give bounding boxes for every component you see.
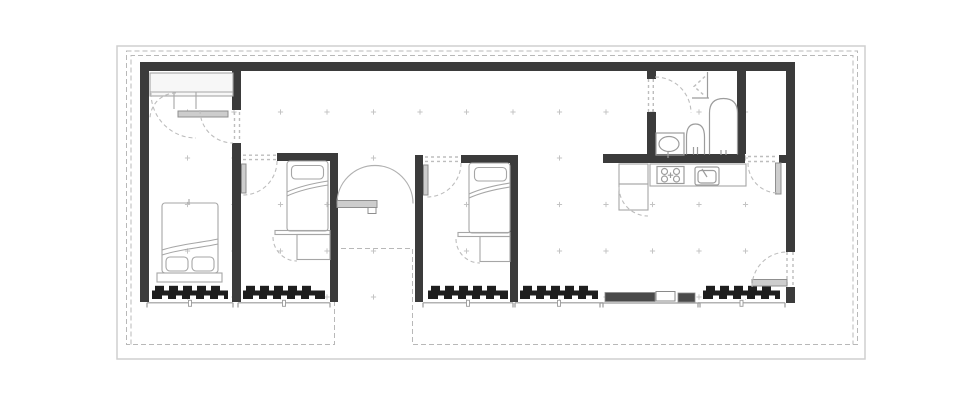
wall-bed3-north	[461, 155, 518, 163]
grid-cross	[324, 202, 329, 207]
bath-niche-lines	[692, 72, 709, 98]
window-shutter	[515, 286, 603, 308]
burner	[662, 176, 668, 182]
tub-outline	[710, 99, 738, 155]
basin-bowl	[659, 137, 679, 152]
wall-bed2-hall	[330, 153, 338, 302]
shutter-notch	[176, 296, 182, 300]
grid-cross	[696, 202, 701, 207]
entry-hall	[337, 166, 413, 214]
grid-cross	[371, 294, 376, 299]
shutter-notch	[295, 296, 301, 300]
wall-east-lower-stub	[786, 287, 795, 303]
shutter-tooth	[720, 286, 729, 291]
desk-cabinet	[273, 231, 330, 262]
shutter-notch	[162, 296, 168, 300]
shutter-notch	[253, 296, 259, 300]
grid-cross	[743, 202, 748, 207]
grid-cross	[278, 202, 283, 207]
grid-cross	[696, 294, 701, 299]
sliding-panel-closed	[605, 293, 655, 302]
shutter-tooth	[288, 286, 297, 291]
shutter-notch	[438, 296, 444, 300]
side-door-opening	[787, 252, 793, 287]
shutter-notch	[713, 296, 719, 300]
bed-blanket-fold	[287, 181, 328, 196]
wall-bath-west	[647, 112, 656, 154]
window-shutter	[423, 286, 513, 308]
grid-cross	[603, 202, 608, 207]
shutter-tooth	[706, 286, 715, 291]
grid-cross	[696, 109, 701, 114]
sill-center-mullion	[467, 300, 470, 306]
grid-cross	[324, 248, 329, 253]
shutter-tooth	[169, 286, 178, 291]
bedroom2-door-opening	[243, 155, 277, 159]
grid-cross	[603, 109, 608, 114]
shutter-notch	[190, 296, 196, 300]
shutter-notch	[281, 296, 287, 300]
tall-unit-upper	[619, 164, 648, 184]
desk-cabinet	[456, 233, 510, 264]
bed-outline	[469, 163, 510, 233]
kitchen	[619, 164, 746, 216]
bed-outline	[287, 161, 328, 231]
entry-door-handle	[368, 208, 376, 214]
shutter-notch	[558, 296, 564, 300]
shutter-tooth	[473, 286, 482, 291]
shutter-notch	[741, 296, 747, 300]
grid-cross	[650, 248, 655, 253]
bathtub	[710, 99, 738, 156]
toilet-bowl	[687, 124, 705, 155]
shutter-notch	[586, 296, 592, 300]
pillow-right	[192, 257, 214, 271]
shutter-tooth	[551, 286, 560, 291]
shutter-tooth	[459, 286, 468, 291]
pillow	[475, 168, 507, 182]
cabinet-door-swing	[273, 237, 297, 261]
shutter-tooth	[431, 286, 440, 291]
window-shutter	[698, 286, 785, 308]
sill-center-mullion	[558, 300, 561, 306]
bedroom3-door-leaf	[424, 165, 429, 195]
side-entry-door	[752, 252, 793, 287]
bedroom1-door-leaf	[178, 111, 228, 117]
sliding-glass-door	[600, 292, 700, 308]
wall-east-upper	[786, 62, 795, 252]
shutter-notch	[769, 296, 775, 300]
bedroom1-door-opening	[235, 112, 240, 141]
wall-bed1-bed2-lower	[232, 143, 241, 302]
shutter-notch	[218, 296, 224, 300]
sill-center-mullion	[189, 300, 192, 306]
grid-cross	[557, 109, 562, 114]
fridge-cabinet	[619, 164, 648, 216]
grid-cross	[557, 202, 562, 207]
shutter-tooth	[734, 286, 743, 291]
grid-cross	[371, 248, 376, 253]
double-bed	[157, 199, 222, 282]
shutter-tooth	[211, 286, 220, 291]
sill-center-mullion	[740, 300, 743, 306]
floor-plan-canvas	[0, 0, 980, 420]
bedroom3-door-swing	[427, 163, 461, 197]
storage-closet	[748, 157, 781, 195]
stove-center-mark	[668, 173, 673, 179]
bed-blanket-fold	[469, 183, 510, 198]
bedroom-3	[424, 157, 511, 263]
shutter-notch	[466, 296, 472, 300]
shutter-notch	[755, 296, 761, 300]
shutter-tooth	[246, 286, 255, 291]
bedroom2-door-leaf	[242, 164, 247, 193]
shutter-tooth	[537, 286, 546, 291]
shutter-notch	[572, 296, 578, 300]
bathroom-door-swing	[655, 77, 691, 113]
single-bed	[287, 161, 328, 231]
closet-door-leaf	[776, 163, 782, 194]
pillow	[292, 166, 324, 180]
burner	[674, 176, 680, 182]
shutter-tooth	[274, 286, 283, 291]
bedroom2-door-swing	[243, 161, 277, 195]
grid-cross	[464, 202, 469, 207]
grid-cross	[324, 294, 329, 299]
entry-door-leaf	[337, 201, 377, 208]
sliding-panel-open	[656, 292, 675, 302]
window-shutter	[147, 286, 233, 308]
toilet	[687, 124, 705, 155]
window-shutter	[238, 286, 330, 308]
grid-cross	[324, 109, 329, 114]
shutter-notch	[452, 296, 458, 300]
shutter-notch	[267, 296, 273, 300]
burner	[662, 169, 668, 175]
shutter-tooth	[302, 286, 311, 291]
grid-cross	[557, 248, 562, 253]
bathroom	[649, 72, 738, 158]
single-bed	[469, 163, 510, 233]
shutter-tooth	[762, 286, 771, 291]
bathroom-door-leaf	[649, 79, 654, 112]
wall-bed3-living	[510, 155, 518, 302]
wardrobe-door-swing-left	[150, 93, 176, 119]
grid-cross	[603, 248, 608, 253]
shutter-notch	[309, 296, 315, 300]
bedroom-2	[242, 155, 331, 261]
grid-cross	[278, 109, 283, 114]
entry-door-swing	[337, 166, 413, 204]
unit-door-swing	[619, 187, 648, 216]
sill-center-mullion	[283, 300, 286, 306]
shutter-notch	[530, 296, 536, 300]
wall-hall-bed3	[415, 155, 423, 302]
shutter-tooth	[183, 286, 192, 291]
shutter-tooth	[579, 286, 588, 291]
grid-cross	[371, 109, 376, 114]
burner	[674, 169, 680, 175]
bedroom3-door-opening	[425, 157, 461, 161]
grid-cross	[185, 155, 190, 160]
shutter-notch	[480, 296, 486, 300]
shutter-tooth	[197, 286, 206, 291]
grid-cross	[743, 248, 748, 253]
cabinet	[297, 235, 330, 260]
tall-unit-lower	[619, 184, 648, 210]
floor-plan-drawing	[0, 0, 980, 420]
grid-cross	[464, 248, 469, 253]
stove	[657, 167, 684, 184]
closet-opening	[748, 157, 776, 162]
shutter-notch	[204, 296, 210, 300]
grid-cross	[650, 202, 655, 207]
shutter-notch	[544, 296, 550, 300]
shutter-notch	[494, 296, 500, 300]
grid-cross	[417, 109, 422, 114]
bifold-door-icon	[694, 77, 705, 97]
shutter-tooth	[523, 286, 532, 291]
grid-cross	[696, 248, 701, 253]
bed-outline	[162, 203, 218, 273]
wall-north	[140, 62, 795, 71]
grid-cross	[464, 109, 469, 114]
shutter-notch	[727, 296, 733, 300]
bed-blanket-fold	[162, 239, 218, 255]
grid-cross	[510, 109, 515, 114]
closet-door-swing	[748, 163, 778, 193]
toilet-base	[694, 147, 698, 155]
sliding-panel-fixed	[678, 293, 695, 302]
wall-bath-east	[737, 71, 746, 154]
wall-bed2-north	[277, 153, 331, 161]
pillow-left	[166, 257, 188, 271]
sliding-door-sill	[600, 303, 700, 308]
kitchen-sink	[695, 167, 719, 185]
side-door-leaf	[752, 280, 787, 287]
headboard	[157, 273, 222, 282]
cabinet	[480, 237, 510, 262]
grid-cross	[371, 155, 376, 160]
shutter-tooth	[260, 286, 269, 291]
wall-west	[140, 62, 149, 302]
grid-cross	[557, 155, 562, 160]
shutter-tooth	[565, 286, 574, 291]
shutter-tooth	[155, 286, 164, 291]
shutter-tooth	[445, 286, 454, 291]
wall-closet-jamb	[779, 155, 786, 163]
wall-bath-west-stub	[647, 71, 656, 79]
bedroom-1	[150, 73, 240, 282]
shutter-tooth	[487, 286, 496, 291]
